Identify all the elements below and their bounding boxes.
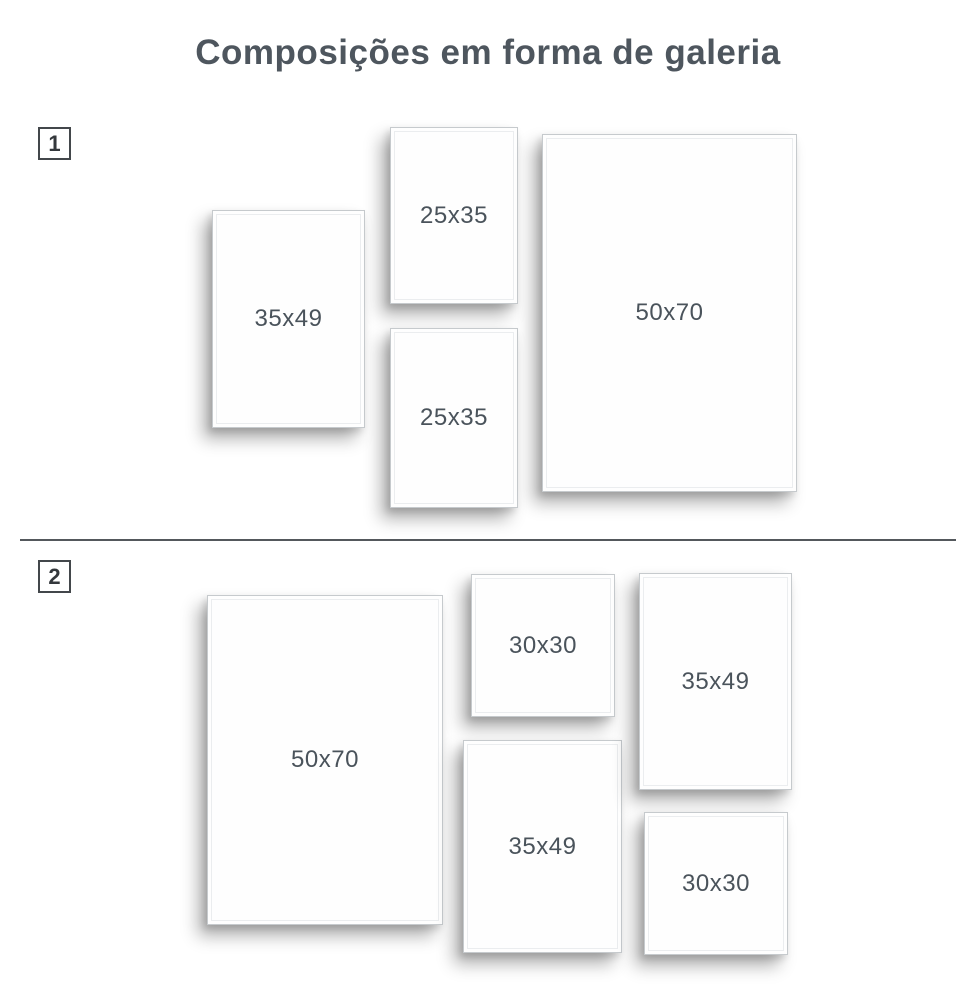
frame-size-label: 30x30 xyxy=(509,632,577,660)
frame-size-label: 50x70 xyxy=(636,299,704,327)
frame-size-label: 35x49 xyxy=(682,668,750,696)
page-title: Composições em forma de galeria xyxy=(0,33,976,73)
section-divider xyxy=(20,539,956,541)
frame-size-label: 25x35 xyxy=(420,404,488,432)
frame-25x35-section-1: 25x35 xyxy=(390,328,518,508)
frame-35x49-section-2: 35x49 xyxy=(639,573,792,790)
frame-size-label: 25x35 xyxy=(420,202,488,230)
section-number-badge-1: 1 xyxy=(38,127,71,160)
frame-size-label: 35x49 xyxy=(509,833,577,861)
frame-35x49-section-1: 35x49 xyxy=(212,210,365,428)
frame-size-label: 50x70 xyxy=(291,746,359,774)
frame-25x35-section-1: 25x35 xyxy=(390,127,518,304)
frame-size-label: 30x30 xyxy=(682,870,750,898)
section-number-badge-2: 2 xyxy=(38,560,71,593)
frame-30x30-section-2: 30x30 xyxy=(644,812,788,955)
frame-35x49-section-2: 35x49 xyxy=(463,740,622,953)
frame-50x70-section-2: 50x70 xyxy=(207,595,443,925)
frame-30x30-section-2: 30x30 xyxy=(471,574,615,717)
frame-50x70-section-1: 50x70 xyxy=(542,134,797,492)
frame-size-label: 35x49 xyxy=(255,305,323,333)
